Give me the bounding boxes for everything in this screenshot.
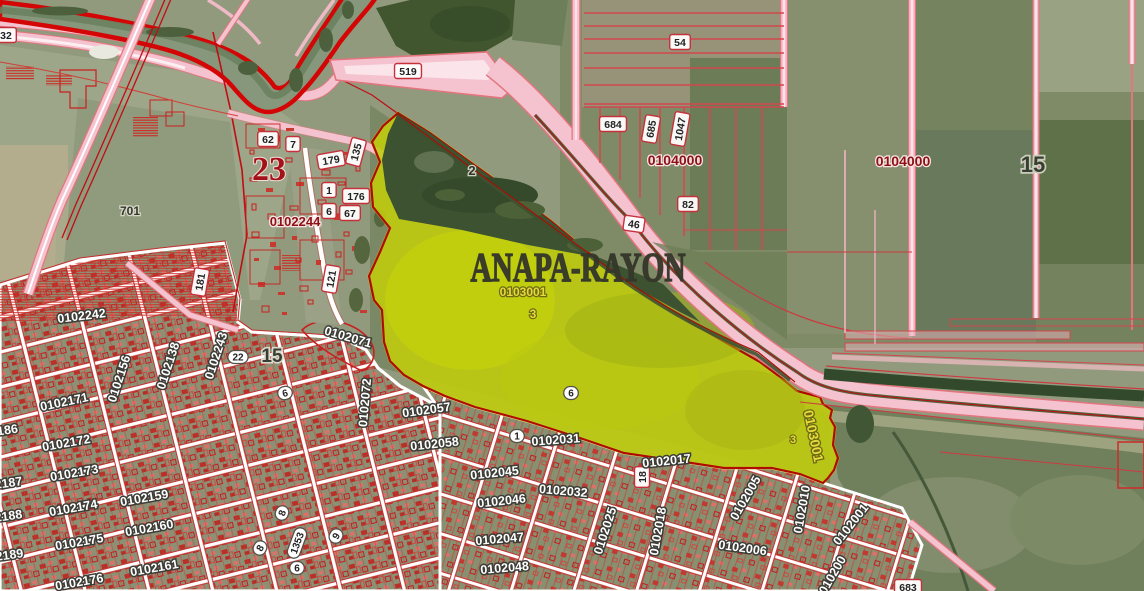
svg-text:683: 683 <box>899 582 917 591</box>
svg-text:82: 82 <box>682 199 694 211</box>
svg-text:2: 2 <box>468 163 475 178</box>
svg-text:1: 1 <box>326 185 332 197</box>
svg-text:62: 62 <box>262 134 274 146</box>
svg-text:0103001: 0103001 <box>500 285 547 299</box>
svg-text:18: 18 <box>637 471 649 483</box>
svg-text:0104000: 0104000 <box>876 153 931 169</box>
svg-text:176: 176 <box>347 191 365 203</box>
svg-text:15: 15 <box>1021 152 1045 177</box>
svg-text:0102244: 0102244 <box>270 214 321 229</box>
svg-text:15: 15 <box>261 346 283 367</box>
svg-text:54: 54 <box>674 37 686 49</box>
svg-text:46: 46 <box>627 218 640 232</box>
svg-text:32: 32 <box>0 30 12 42</box>
svg-text:519: 519 <box>399 66 417 78</box>
svg-text:6: 6 <box>568 389 574 400</box>
svg-text:ANAPA-RAYON: ANAPA-RAYON <box>471 244 686 290</box>
svg-text:701: 701 <box>120 204 140 218</box>
svg-text:6: 6 <box>326 206 332 218</box>
svg-text:6: 6 <box>294 564 300 575</box>
svg-text:23: 23 <box>252 151 286 188</box>
svg-text:67: 67 <box>344 208 356 220</box>
svg-text:0104000: 0104000 <box>648 152 703 168</box>
svg-text:1: 1 <box>514 432 520 443</box>
svg-text:22: 22 <box>232 353 244 364</box>
svg-text:3: 3 <box>790 434 796 446</box>
svg-text:7: 7 <box>290 139 296 151</box>
svg-text:684: 684 <box>604 119 622 131</box>
svg-text:3: 3 <box>530 307 537 321</box>
svg-text:186: 186 <box>0 422 19 439</box>
